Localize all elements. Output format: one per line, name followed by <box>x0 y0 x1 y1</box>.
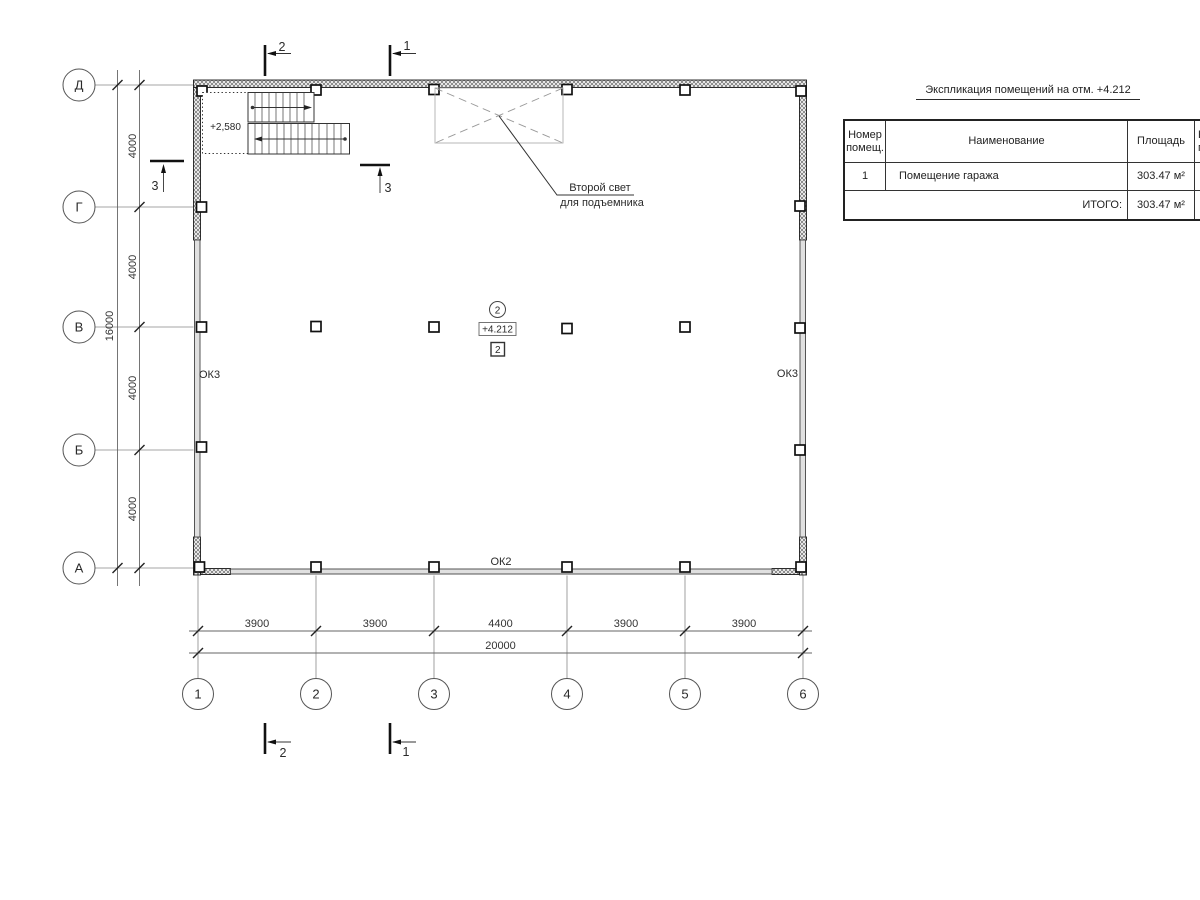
dim-bottom-3900-2: 3900 <box>363 618 387 630</box>
axis-label-a: А <box>75 561 84 576</box>
axis-label-d: Д <box>75 78 84 93</box>
column-marker <box>197 442 207 452</box>
room-marks: 2 +4.212 2 <box>479 302 516 357</box>
column-marker <box>562 85 572 95</box>
column-marker <box>429 322 439 332</box>
level-box-label: 2 <box>495 345 501 356</box>
bottom-dimension-labels: 3900 3900 4400 3900 3900 20000 <box>245 618 756 652</box>
window-label-ok3-right: ОК3 <box>777 368 798 380</box>
dim-left-total-16000: 16000 <box>104 311 116 342</box>
schedule-header-cut: К г <box>1195 121 1200 163</box>
elevation-mark-label: +4.212 <box>482 325 513 336</box>
schedule-row1-cut <box>1195 163 1200 191</box>
dim-bottom-3900-4: 3900 <box>732 618 756 630</box>
ceiling-opening: Второй свет для подъемника <box>435 88 645 209</box>
axis-label-1: 1 <box>194 687 201 702</box>
schedule-row1-name: Помещение гаража <box>886 163 1128 191</box>
schedule-row1-area: 303.47 м² <box>1128 163 1195 191</box>
axis-label-v: В <box>75 320 84 335</box>
stair-direction-start-dot <box>343 137 347 141</box>
window-band-right <box>800 240 806 537</box>
window-bands <box>195 240 806 574</box>
dim-bottom-total-20000: 20000 <box>485 640 516 652</box>
window-label-ok2-bottom: ОК2 <box>490 556 511 568</box>
column-marker <box>195 562 205 572</box>
column-marker <box>680 322 690 332</box>
schedule-header-name: Наименование <box>886 121 1128 163</box>
opening-note-line2: для подъемника <box>560 197 645 209</box>
stair-direction-start-dot <box>251 106 255 110</box>
section-label-3-right: 3 <box>385 181 392 195</box>
window-band-left <box>195 240 201 537</box>
column-marker <box>562 562 572 572</box>
bottom-axis-bubbles: 1 2 3 4 5 6 <box>183 679 819 710</box>
axis-label-4: 4 <box>563 687 570 702</box>
schedule-header-area: Площадь <box>1128 121 1195 163</box>
section-arrow-up <box>161 164 166 173</box>
column-marker <box>795 201 805 211</box>
section-arrow-left <box>267 740 276 745</box>
staircase: +2,580 <box>203 93 350 155</box>
section-arrow-left <box>392 740 401 745</box>
wall-left-upper <box>194 88 201 241</box>
dim-left-4000-2: 4000 <box>127 255 139 279</box>
opening-note-line1: Второй свет <box>569 182 630 194</box>
axis-label-2: 2 <box>312 687 319 702</box>
axis-label-6: 6 <box>799 687 806 702</box>
column-marker <box>795 323 805 333</box>
room-schedule-table: Номер помещ. Наименование Площадь К г 1 … <box>843 119 1200 221</box>
stair-elevation-label: +2,580 <box>210 122 241 133</box>
schedule-title: Экспликация помещений на отм. +4.212 <box>916 84 1140 100</box>
column-marker <box>796 86 806 96</box>
column-marker <box>680 562 690 572</box>
wall-top <box>194 80 807 88</box>
dim-left-4000-3: 4000 <box>127 376 139 400</box>
axis-label-5: 5 <box>681 687 688 702</box>
wall-right-upper <box>800 88 807 241</box>
section-arrow-left <box>392 51 401 56</box>
section-label-1-bottom: 1 <box>403 745 410 759</box>
schedule-total-area: 303.47 м² <box>1128 191 1195 219</box>
column-marker <box>795 445 805 455</box>
left-dimension-labels: 4000 4000 4000 4000 16000 <box>104 134 139 521</box>
dim-bottom-3900-1: 3900 <box>245 618 269 630</box>
schedule-row1-number: 1 <box>845 163 886 191</box>
dim-bottom-3900-3: 3900 <box>614 618 638 630</box>
header-number-line1: Номер <box>848 129 882 141</box>
axis-label-b: Б <box>75 443 84 458</box>
section-label-3-left: 3 <box>152 179 159 193</box>
section-label-2-bottom: 2 <box>280 746 287 760</box>
column-marker <box>796 562 806 572</box>
section-label-2-top: 2 <box>279 40 286 54</box>
floor-plan-sheet: Д Г В Б А 1 2 3 4 5 6 <box>0 0 1200 900</box>
dim-left-4000-4: 4000 <box>127 497 139 521</box>
section-arrow-up <box>378 167 383 176</box>
window-label-ok3-left: ОК3 <box>199 369 220 381</box>
schedule-total-cut <box>1195 191 1200 219</box>
schedule-total-label: ИТОГО: <box>845 191 1128 219</box>
opening-diagonals <box>435 88 563 143</box>
column-marker <box>311 562 321 572</box>
column-marker <box>429 562 439 572</box>
schedule-header-number: Номер помещ. <box>845 121 886 163</box>
dim-bottom-4400: 4400 <box>488 618 512 630</box>
column-marker <box>562 324 572 334</box>
header-number-line2: помещ. <box>846 142 884 154</box>
axis-label-g: Г <box>75 200 82 215</box>
column-marker <box>197 322 207 332</box>
column-marker <box>680 85 690 95</box>
column-marker <box>197 202 207 212</box>
room-number-label: 2 <box>495 306 501 317</box>
axis-label-3: 3 <box>430 687 437 702</box>
section-arrow-left <box>267 51 276 56</box>
section-label-1-top: 1 <box>404 39 411 53</box>
dim-left-4000-1: 4000 <box>127 134 139 158</box>
column-marker <box>311 322 321 332</box>
left-axis-bubbles: Д Г В Б А <box>63 69 95 584</box>
